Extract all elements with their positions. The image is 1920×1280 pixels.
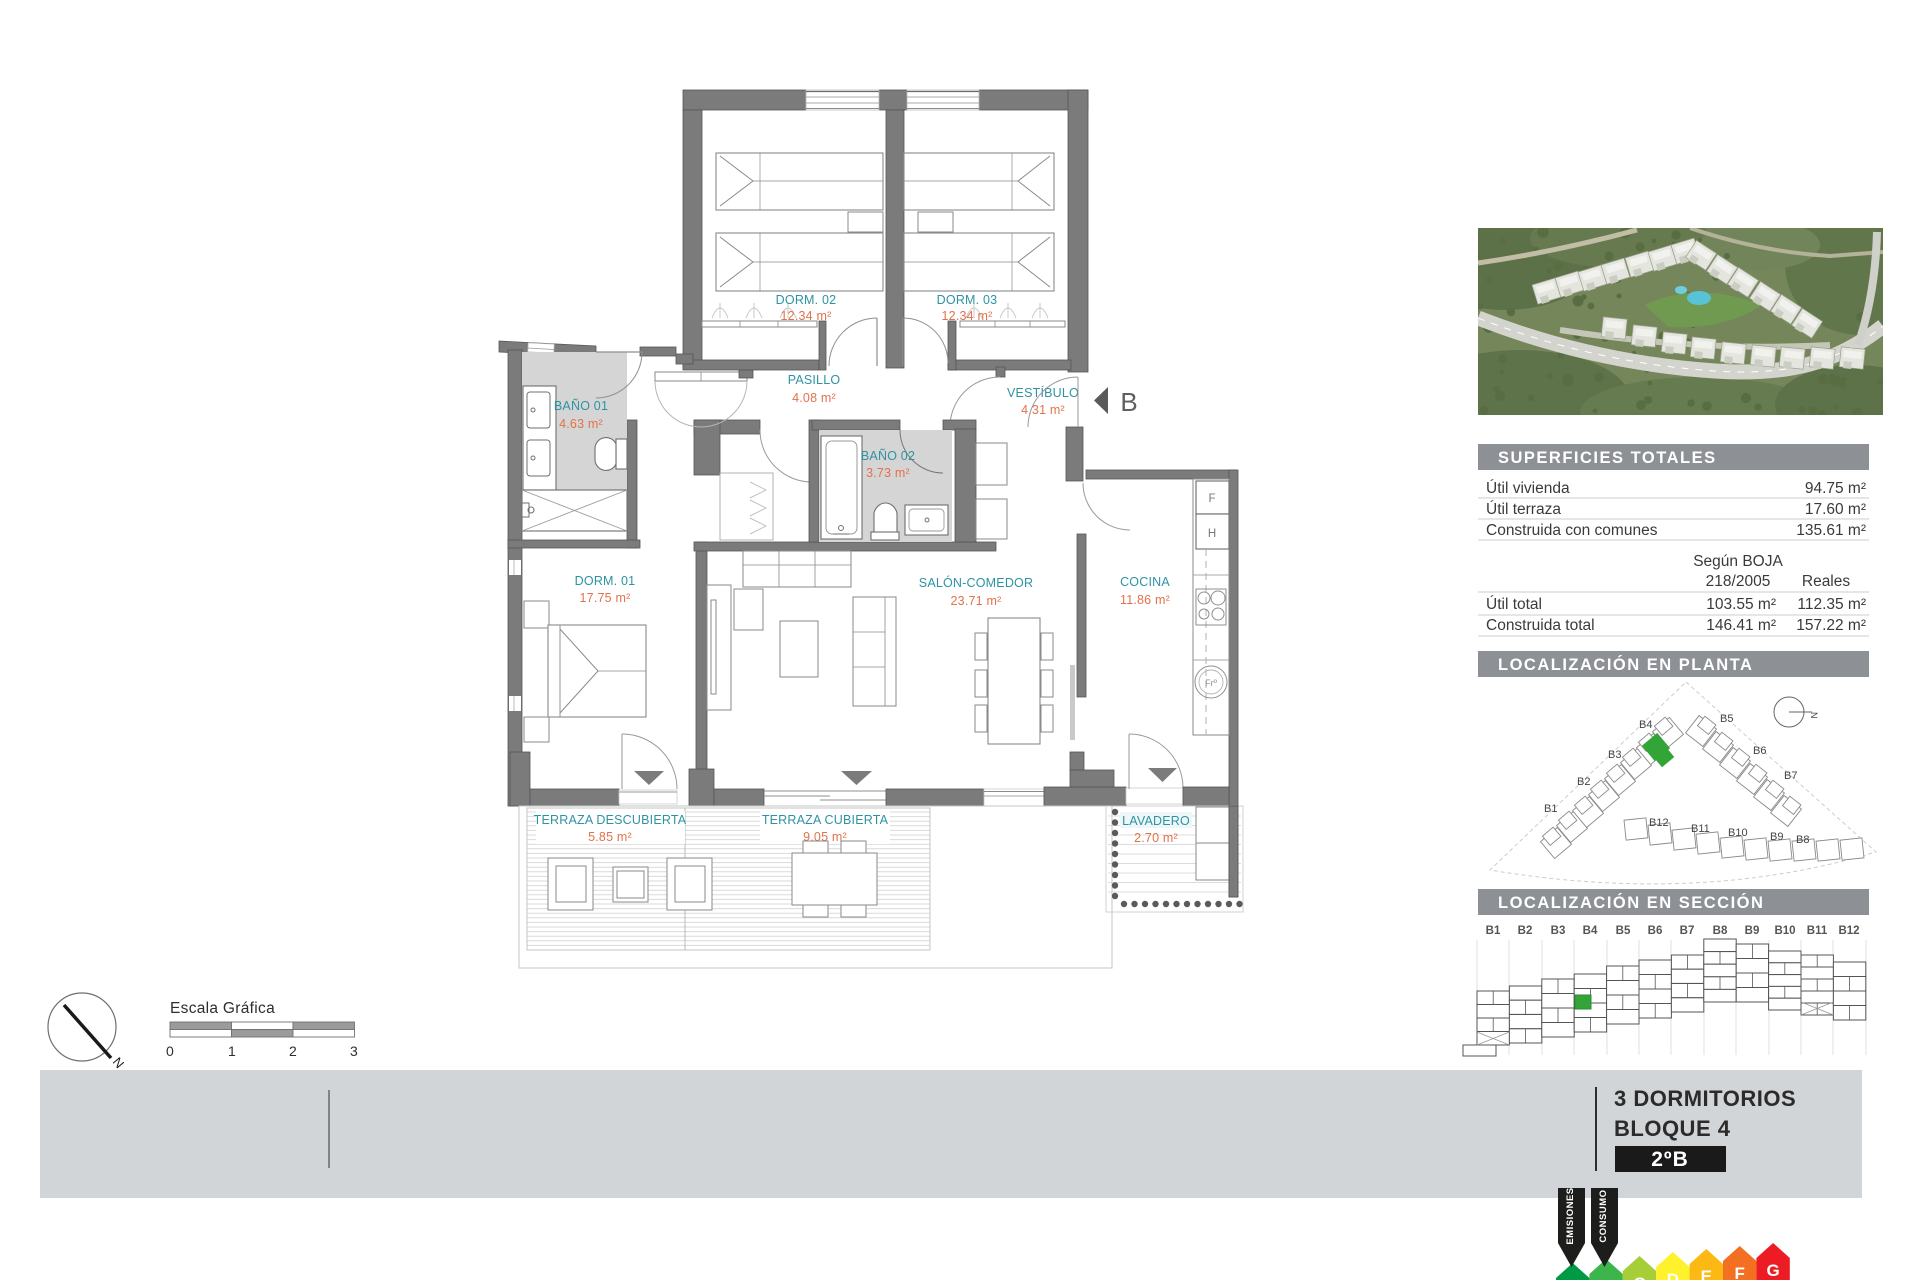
svg-text:B3: B3 <box>1551 925 1566 937</box>
svg-text:B11: B11 <box>1807 925 1828 937</box>
svg-text:B2: B2 <box>1518 925 1533 937</box>
svg-text:VESTÍBULO: VESTÍBULO <box>1007 385 1079 400</box>
svg-text:SUPERFICIES TOTALES: SUPERFICIES TOTALES <box>1498 449 1717 467</box>
svg-text:Según BOJA: Según BOJA <box>1693 553 1783 570</box>
svg-text:DORM. 02: DORM. 02 <box>776 293 837 307</box>
svg-text:B5: B5 <box>1720 713 1733 725</box>
svg-text:146.41 m²: 146.41 m² <box>1706 617 1776 634</box>
svg-text:0: 0 <box>166 1043 174 1059</box>
svg-text:218/2005: 218/2005 <box>1706 573 1771 590</box>
svg-text:E: E <box>1701 1267 1712 1280</box>
svg-text:B10: B10 <box>1774 925 1795 937</box>
svg-text:3 DORMITORIOS: 3 DORMITORIOS <box>1614 1086 1796 1111</box>
svg-text:B1: B1 <box>1544 803 1557 815</box>
svg-text:Escala Gráfica: Escala Gráfica <box>170 1000 275 1017</box>
svg-text:Útil total: Útil total <box>1486 596 1542 613</box>
svg-text:DORM. 03: DORM. 03 <box>937 293 998 307</box>
svg-text:G: G <box>1766 1261 1779 1280</box>
svg-text:2.70 m²: 2.70 m² <box>1134 831 1178 845</box>
svg-text:12.34 m²: 12.34 m² <box>781 309 832 323</box>
svg-text:5.85 m²: 5.85 m² <box>588 830 632 844</box>
svg-text:Construida con comunes: Construida con comunes <box>1486 522 1658 539</box>
svg-text:Construida total: Construida total <box>1486 617 1595 634</box>
svg-text:B6: B6 <box>1753 745 1766 757</box>
svg-text:H: H <box>1208 528 1216 540</box>
svg-text:DORM. 01: DORM. 01 <box>575 574 636 588</box>
svg-text:B10: B10 <box>1728 827 1748 839</box>
svg-text:12.34 m²: 12.34 m² <box>942 309 993 323</box>
svg-text:LAVADERO: LAVADERO <box>1122 814 1190 828</box>
svg-text:SALÓN-COMEDOR: SALÓN-COMEDOR <box>919 575 1033 590</box>
svg-text:B6: B6 <box>1648 925 1663 937</box>
svg-text:Útil terraza: Útil terraza <box>1486 501 1561 518</box>
svg-text:CONSUMO: CONSUMO <box>1598 1189 1609 1242</box>
svg-text:F: F <box>1735 1264 1745 1280</box>
svg-text:17.60 m²: 17.60 m² <box>1805 501 1866 518</box>
svg-text:B12: B12 <box>1838 925 1859 937</box>
svg-text:BAÑO 02: BAÑO 02 <box>861 449 915 463</box>
svg-text:D: D <box>1667 1270 1679 1280</box>
svg-text:11.86 m²: 11.86 m² <box>1120 593 1170 607</box>
svg-text:3: 3 <box>350 1043 358 1059</box>
svg-text:B5: B5 <box>1616 925 1631 937</box>
svg-text:B9: B9 <box>1770 831 1783 843</box>
svg-text:Reales: Reales <box>1802 573 1850 590</box>
svg-text:EMISIONES: EMISIONES <box>1565 1187 1576 1244</box>
svg-text:BAÑO 01: BAÑO 01 <box>554 399 608 413</box>
svg-text:B1: B1 <box>1486 925 1501 937</box>
svg-text:B3: B3 <box>1608 749 1621 761</box>
svg-text:B4: B4 <box>1583 925 1598 937</box>
svg-text:Frº: Frº <box>1205 678 1217 688</box>
svg-text:2: 2 <box>289 1043 297 1059</box>
svg-text:B: B <box>1120 387 1137 417</box>
svg-text:LOCALIZACIÓN EN PLANTA: LOCALIZACIÓN EN PLANTA <box>1498 655 1753 674</box>
svg-text:135.61 m²: 135.61 m² <box>1796 522 1866 539</box>
svg-text:F: F <box>1208 493 1215 505</box>
svg-text:4.63 m²: 4.63 m² <box>559 417 603 431</box>
svg-text:B12: B12 <box>1649 817 1669 829</box>
svg-text:BLOQUE 4: BLOQUE 4 <box>1614 1116 1731 1141</box>
svg-text:B2: B2 <box>1577 776 1590 788</box>
svg-text:B8: B8 <box>1713 925 1728 937</box>
svg-text:B4: B4 <box>1639 719 1652 731</box>
svg-text:2ºB: 2ºB <box>1651 1148 1689 1171</box>
svg-text:103.55 m²: 103.55 m² <box>1706 596 1776 613</box>
svg-text:TERRAZA CUBIERTA: TERRAZA CUBIERTA <box>762 813 889 827</box>
svg-text:TERRAZA DESCUBIERTA: TERRAZA DESCUBIERTA <box>534 813 687 827</box>
svg-text:157.22 m²: 157.22 m² <box>1796 617 1866 634</box>
svg-text:B7: B7 <box>1680 925 1695 937</box>
svg-text:94.75 m²: 94.75 m² <box>1805 480 1866 497</box>
svg-text:LOCALIZACIÓN EN SECCIÓN: LOCALIZACIÓN EN SECCIÓN <box>1498 893 1764 912</box>
svg-text:B7: B7 <box>1784 770 1797 782</box>
svg-text:C: C <box>1633 1274 1645 1280</box>
svg-text:B11: B11 <box>1691 823 1710 835</box>
svg-text:112.35 m²: 112.35 m² <box>1797 596 1866 613</box>
svg-text:1: 1 <box>228 1043 236 1059</box>
svg-text:23.71 m²: 23.71 m² <box>951 594 1002 608</box>
svg-text:PASILLO: PASILLO <box>788 373 841 387</box>
svg-text:COCINA: COCINA <box>1120 575 1170 589</box>
svg-text:3.73 m²: 3.73 m² <box>866 466 910 480</box>
svg-text:4.08 m²: 4.08 m² <box>792 391 836 405</box>
svg-text:4.31 m²: 4.31 m² <box>1021 403 1065 417</box>
svg-text:N: N <box>1809 712 1819 719</box>
svg-text:B8: B8 <box>1796 834 1809 846</box>
svg-text:17.75 m²: 17.75 m² <box>580 591 631 605</box>
svg-text:B9: B9 <box>1745 925 1760 937</box>
svg-text:Útil vivienda: Útil vivienda <box>1486 480 1570 497</box>
